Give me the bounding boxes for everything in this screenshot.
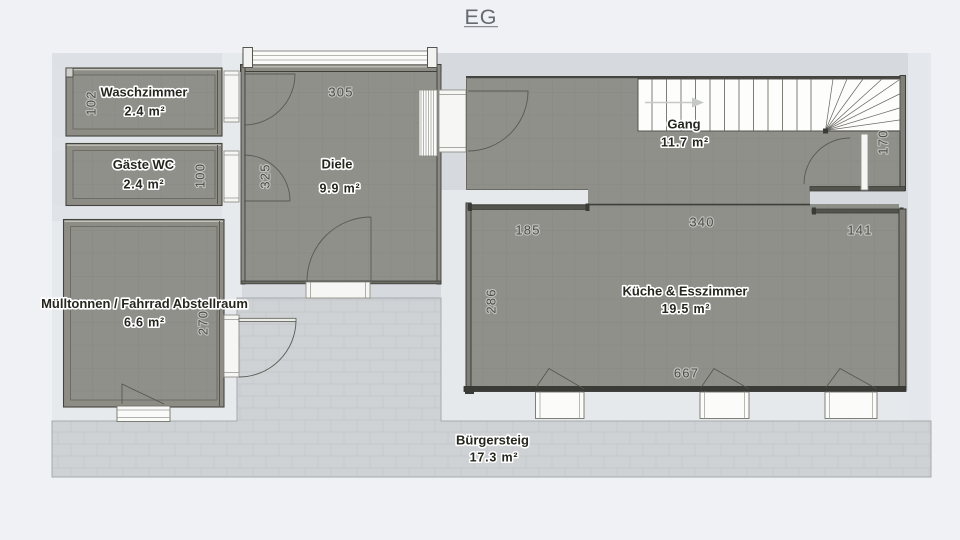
svg-text:Mülltonnen / Fahrrad Abstellra: Mülltonnen / Fahrrad Abstellraum <box>41 296 248 311</box>
svg-text:286: 286 <box>484 288 499 313</box>
svg-text:2.4 m²: 2.4 m² <box>125 105 166 119</box>
svg-text:Gäste WC: Gäste WC <box>113 157 175 172</box>
svg-text:Diele: Diele <box>321 157 352 172</box>
svg-text:100: 100 <box>193 163 208 188</box>
svg-text:Waschzimmer: Waschzimmer <box>101 85 188 100</box>
svg-text:Küche & Esszimmer: Küche & Esszimmer <box>623 284 748 299</box>
svg-text:6.6 m²: 6.6 m² <box>124 316 165 330</box>
svg-text:185: 185 <box>515 223 540 238</box>
svg-text:EG: EG <box>464 5 497 29</box>
svg-text:19.5 m²: 19.5 m² <box>662 302 711 316</box>
svg-text:Bürgersteig: Bürgersteig <box>456 433 529 448</box>
svg-text:325: 325 <box>258 163 273 188</box>
svg-text:270: 270 <box>196 310 211 335</box>
svg-text:340: 340 <box>689 215 714 230</box>
svg-text:9.9 m²: 9.9 m² <box>320 182 361 196</box>
svg-text:17.3 m²: 17.3 m² <box>470 451 519 465</box>
svg-text:102: 102 <box>84 90 99 115</box>
svg-text:11.7 m²: 11.7 m² <box>661 136 709 150</box>
svg-text:667: 667 <box>674 366 699 381</box>
svg-text:141: 141 <box>847 223 872 238</box>
svg-text:2.4 m²: 2.4 m² <box>124 178 165 192</box>
svg-text:Gang: Gang <box>667 117 700 132</box>
svg-text:305: 305 <box>328 85 353 100</box>
svg-text:170: 170 <box>876 129 891 154</box>
